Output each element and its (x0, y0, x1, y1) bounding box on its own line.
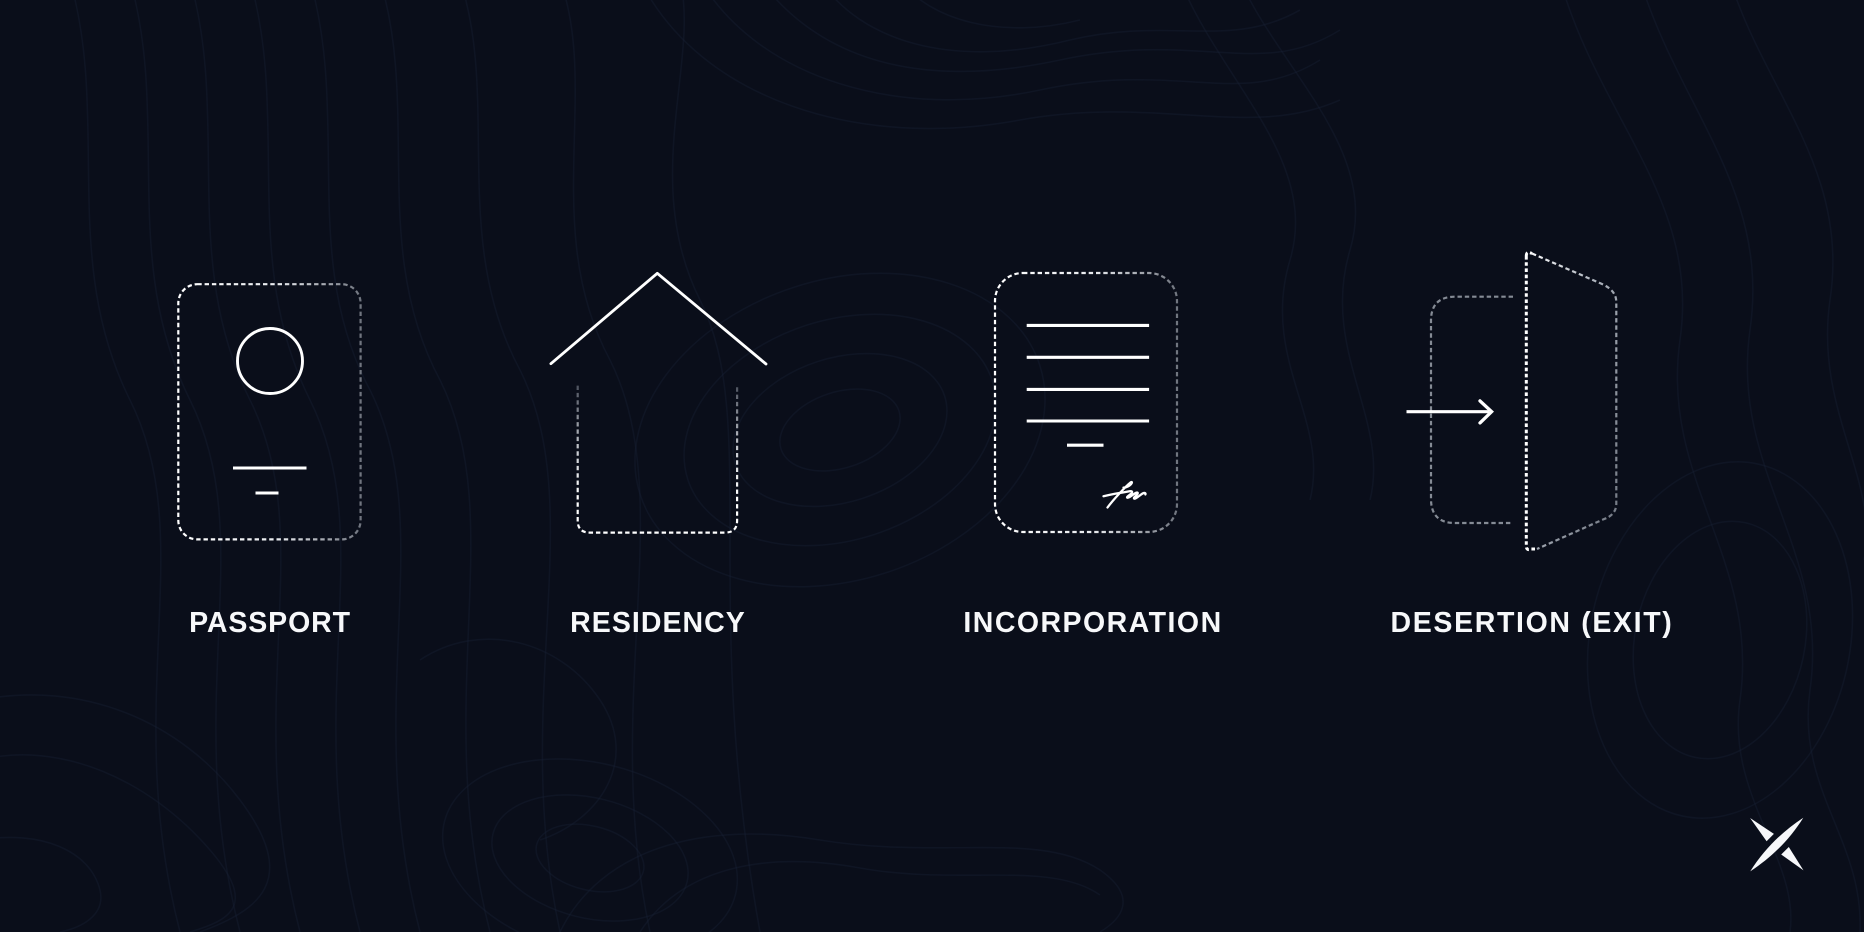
svg-text:DESERTION (EXIT): DESERTION (EXIT) (1391, 607, 1674, 639)
svg-text:INCORPORATION: INCORPORATION (963, 607, 1222, 639)
svg-text:PASSPORT: PASSPORT (189, 607, 351, 639)
svg-text:RESIDENCY: RESIDENCY (570, 607, 746, 639)
